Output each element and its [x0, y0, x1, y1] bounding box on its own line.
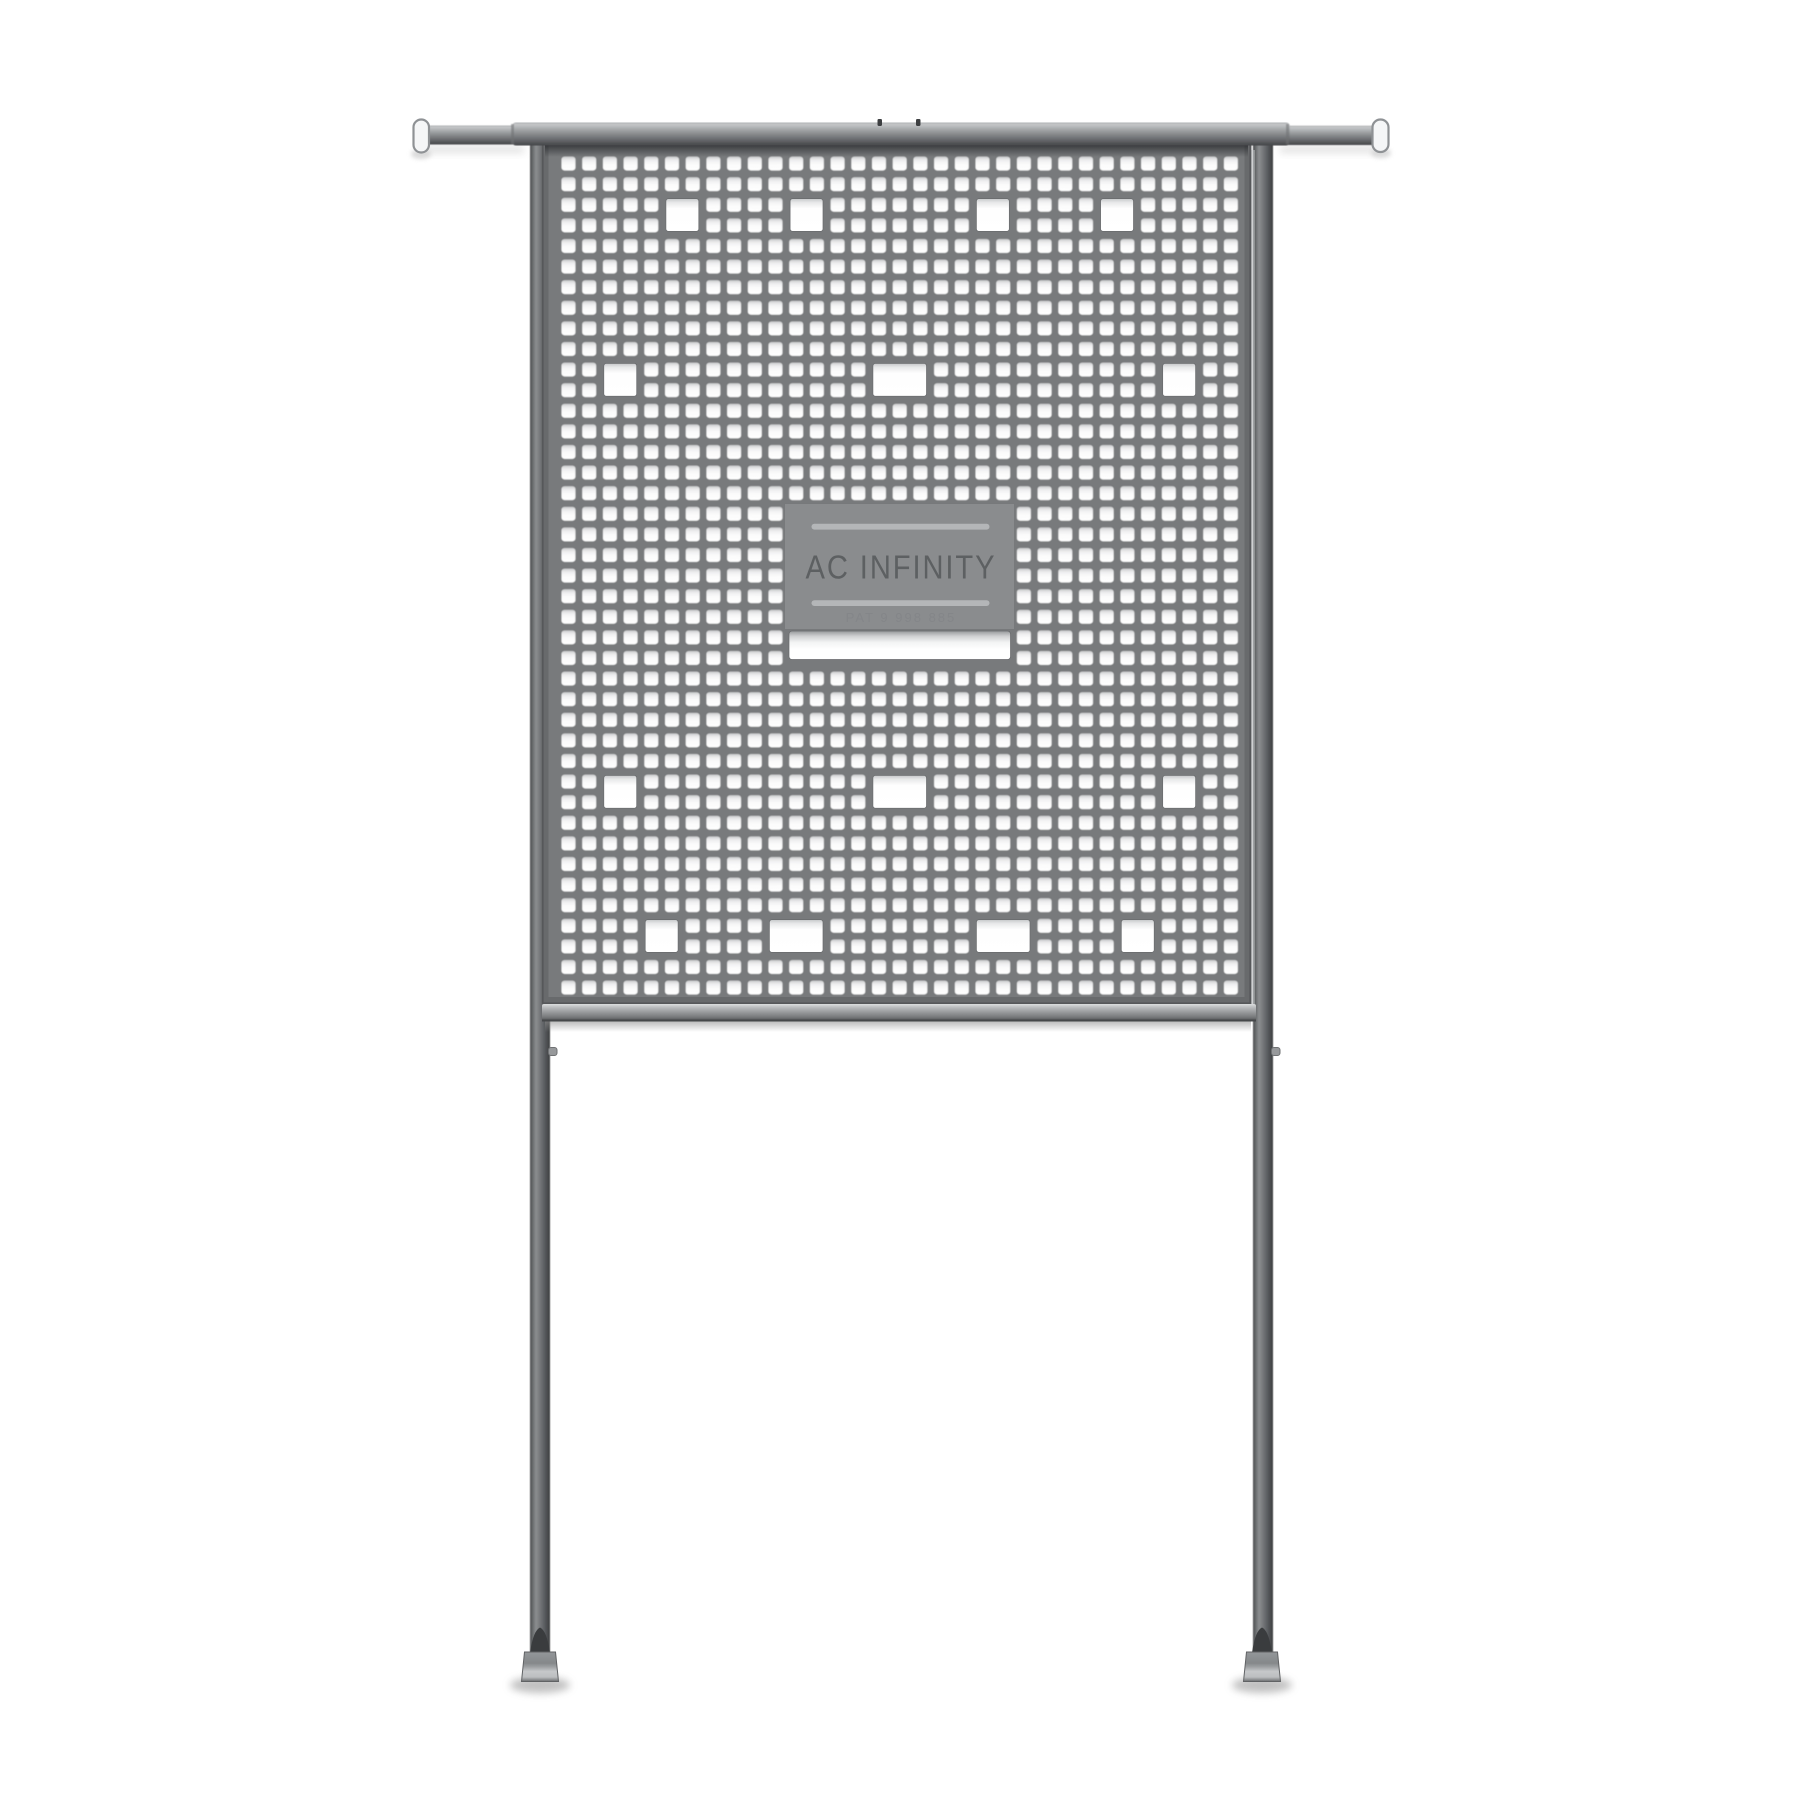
svg-text:PAT 9 998 885: PAT 9 998 885: [846, 610, 957, 625]
svg-text:AC INFINITY: AC INFINITY: [806, 549, 997, 586]
